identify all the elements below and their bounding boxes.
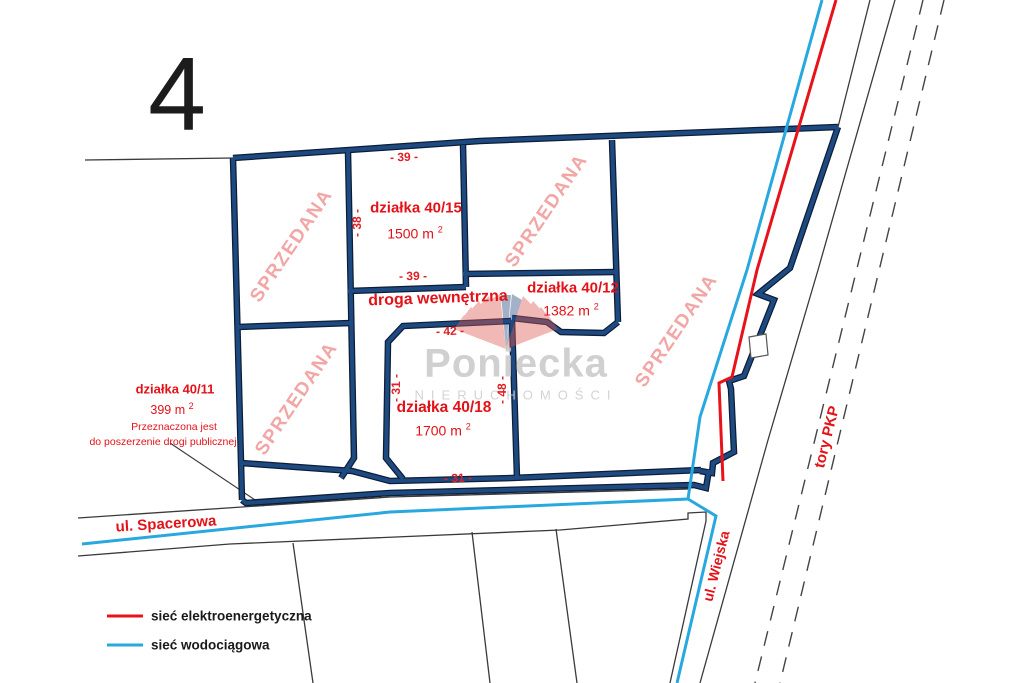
plot-40-11-area-value: 399 m <box>150 403 185 417</box>
railway-tracks-dashed-lines <box>755 0 944 683</box>
dimension-48: - 48 - <box>495 376 509 404</box>
dimension-top-39: - 39 - <box>390 150 418 165</box>
railway-track-line-1 <box>755 0 923 683</box>
dimension-left-38: - 38 - <box>350 209 364 237</box>
plot-40-11-note-line2: do poszerzenie drogi publicznej <box>89 436 236 448</box>
plot-40-11-area-sup: 2 <box>189 401 194 411</box>
street-spacerowa-lower-edge <box>78 512 706 683</box>
street-wiejska-east-edge <box>700 0 895 683</box>
watermark-brand: Poniecka <box>424 342 608 387</box>
plot-40-15-area-sup: 2 <box>438 225 443 235</box>
plot-40-15-name: działka 40/15 <box>370 200 462 217</box>
plot-40-18-area-value: 1700 m <box>415 422 462 438</box>
legend-water-label: sieć wodociągowa <box>151 638 270 653</box>
plot-40-11-area: 399 m 2 <box>150 401 193 417</box>
plot-40-12-name: działka 40/12 <box>527 280 619 297</box>
plot-40-12-area: 1382 m 2 <box>543 302 599 319</box>
plot-40-18-name: działka 40/18 <box>397 399 492 417</box>
plot-40-11-name: działka 40/11 <box>136 382 215 397</box>
plot-40-18-area: 1700 m 2 <box>415 422 471 439</box>
dimension-left-31: - 31 - <box>389 374 403 402</box>
south-parcel-line-3 <box>556 529 577 683</box>
plot-40-11-note-line1: Przeznaczona jest <box>131 421 217 433</box>
land-plot-site-plan: Poniecka NIERUCHOMOŚCI 4 - 39 - - 38 - -… <box>0 0 1024 683</box>
legend-power-label: sieć elektroenergetyczna <box>151 609 312 624</box>
plot-40-15-area-value: 1500 m <box>387 225 434 241</box>
street-wiejska-west-edge <box>838 0 870 127</box>
plot-40-18-area-sup: 2 <box>466 422 471 432</box>
plot-40-11-leader-line <box>170 443 264 506</box>
plot-40-12-area-value: 1382 m <box>543 302 590 318</box>
transformer-building-square <box>749 334 768 358</box>
north-boundary-extension-line <box>85 158 233 160</box>
plot-40-15-area: 1500 m 2 <box>387 225 443 242</box>
sheet-number: 4 <box>148 36 206 155</box>
dimension-mid-39: - 39 - <box>399 269 427 283</box>
dimension-bottom-31: - 31 - <box>444 471 472 486</box>
south-parcel-line-2 <box>472 532 490 683</box>
plot-40-12-area-sup: 2 <box>594 302 599 312</box>
dimension-42: - 42 - <box>436 324 464 339</box>
